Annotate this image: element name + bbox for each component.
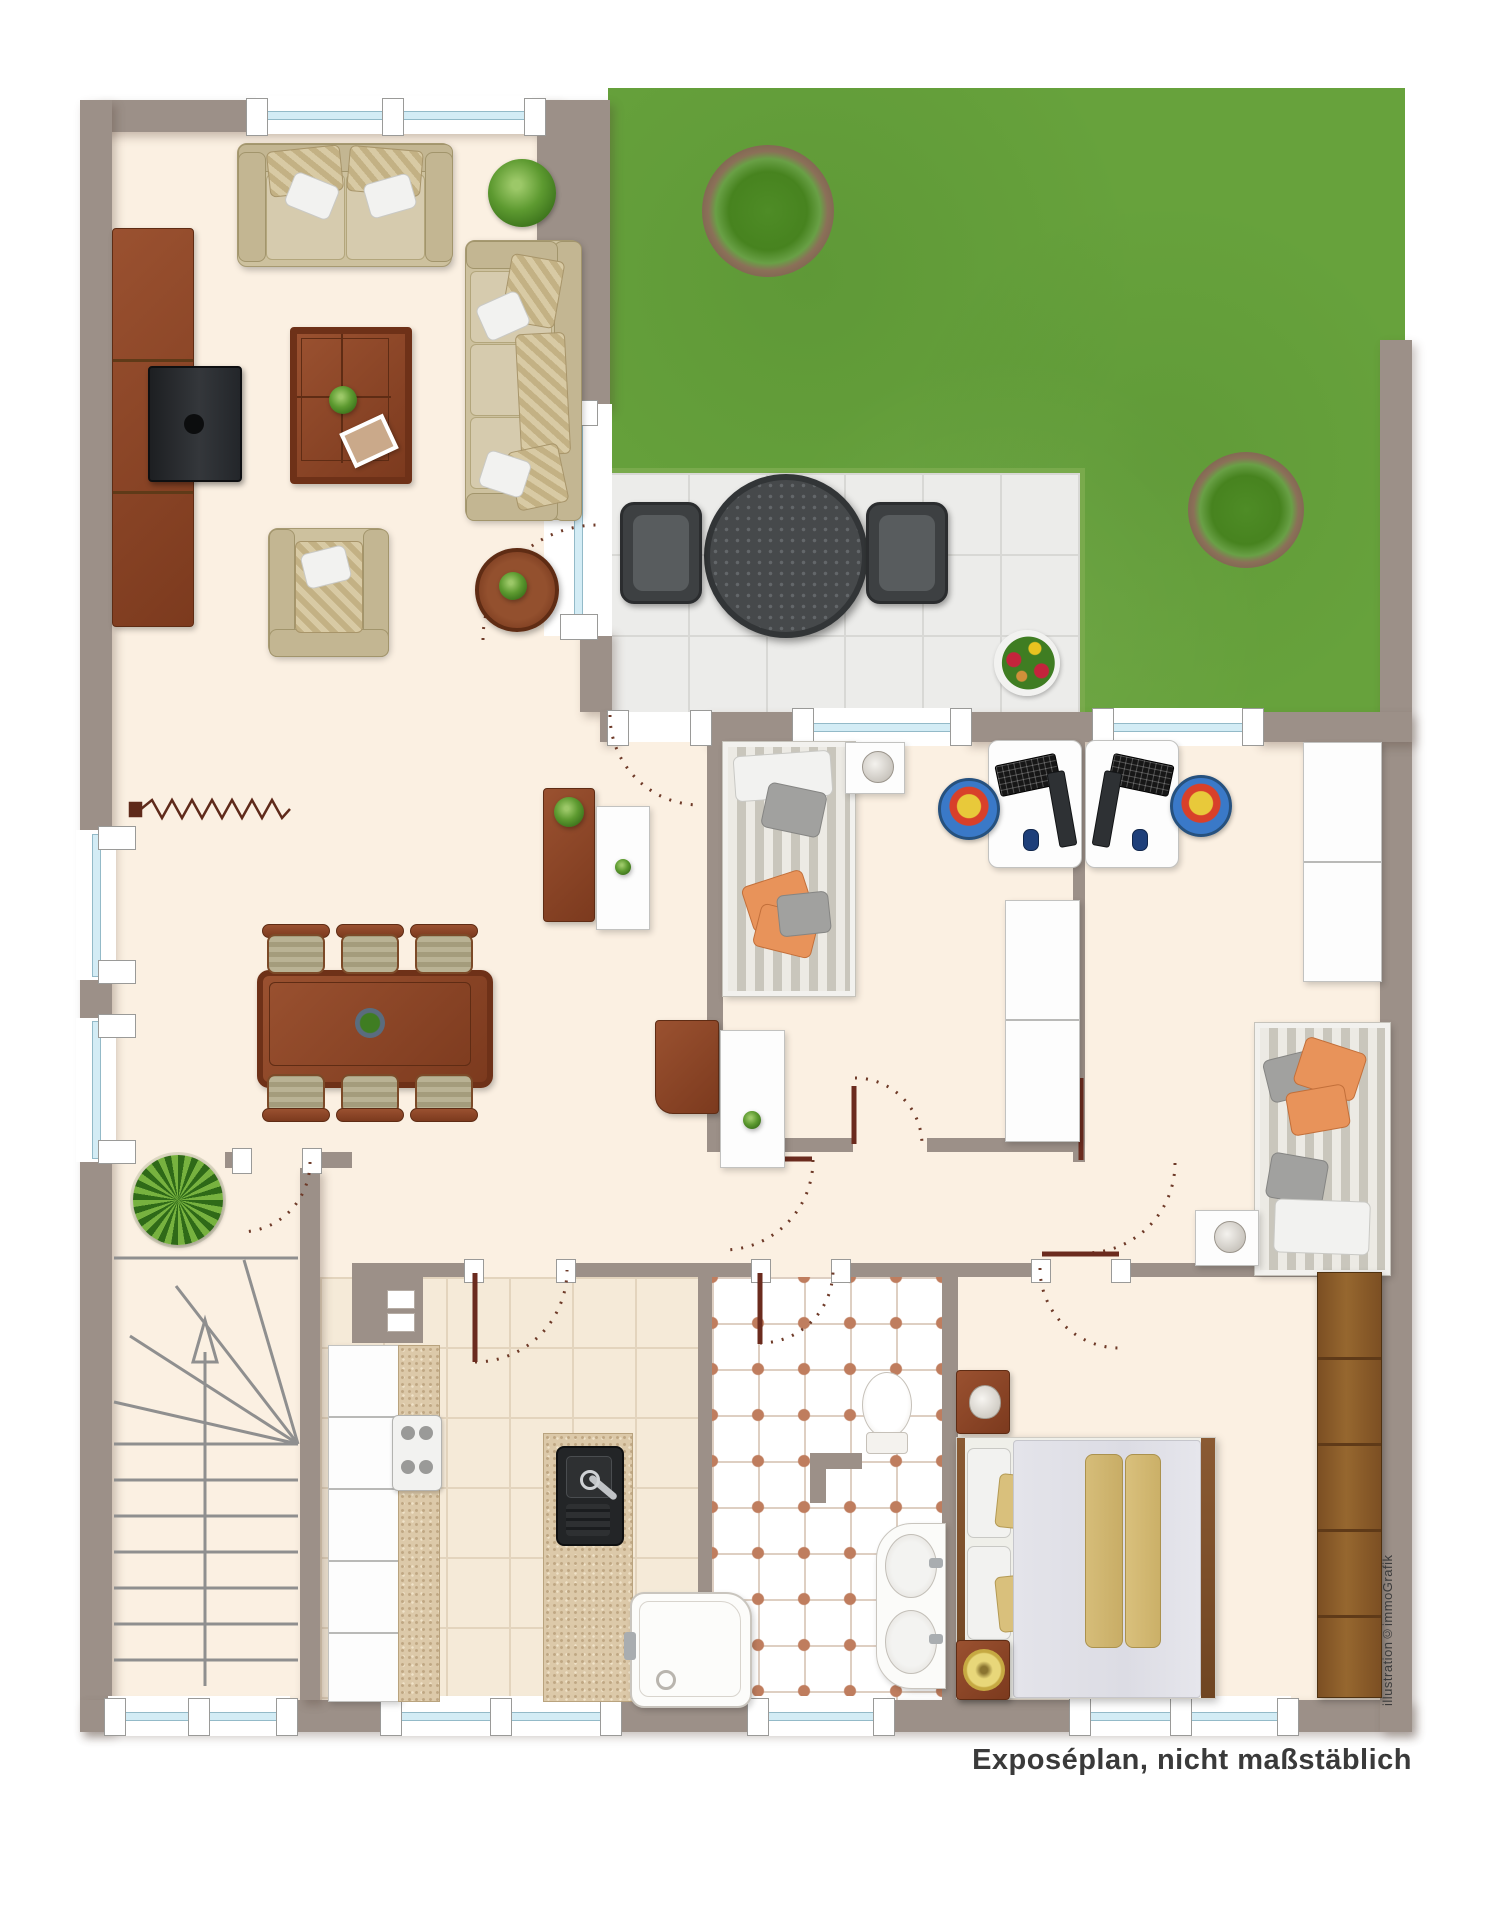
dining-table (257, 970, 493, 1088)
bedroom-wardrobe (1317, 1272, 1382, 1698)
three-seat-sofa (465, 240, 581, 520)
bedroom-nightstand-top (956, 1370, 1010, 1434)
lamp-icon (1214, 1221, 1246, 1253)
door-arc-hall-terrace (610, 715, 700, 805)
yucca-plant-icon (133, 1155, 223, 1245)
dining-chair (336, 924, 402, 972)
tv-icon (148, 366, 242, 482)
kitchen-counter (398, 1345, 440, 1702)
dining-chair (410, 1072, 476, 1120)
door-arc-child1 (855, 1078, 922, 1145)
faucet-icon (929, 1634, 943, 1644)
drain-icon (656, 1670, 676, 1690)
child2-chair (1170, 775, 1232, 837)
door-arc-bedroom (1040, 1268, 1120, 1348)
child1-wardrobe (1005, 900, 1080, 1142)
hall-cabinet-2 (720, 1030, 785, 1168)
round-side-table (475, 548, 559, 632)
mouse-icon (1132, 829, 1148, 851)
table-plant-icon (355, 1008, 385, 1038)
child1-bed (723, 742, 855, 996)
dining-chair (336, 1072, 402, 1120)
child1-chair (938, 778, 1000, 840)
child2-wardrobe (1303, 742, 1382, 982)
hall-cabinet (596, 806, 650, 930)
door-arc-bath (760, 1270, 833, 1343)
shower-tub-icon (630, 1592, 752, 1708)
plan-caption: Exposéplan, nicht maßstäblich (800, 1744, 1412, 1788)
hall-sideboard (543, 788, 595, 922)
dining-chair (262, 1072, 328, 1120)
bedroom-nightstand-bottom (956, 1640, 1010, 1700)
child1-nightstand (845, 742, 905, 794)
dining-chair (410, 924, 476, 972)
armchair (268, 528, 388, 656)
faucet-icon (929, 1558, 943, 1568)
yellow-blanket (1125, 1454, 1161, 1648)
staircase-icon (114, 1258, 298, 1686)
faucet-icon (624, 1632, 636, 1660)
hall-sideboard-2 (655, 1020, 719, 1114)
kitchen-cabinet-run (328, 1345, 400, 1702)
child1-desk (988, 740, 1082, 868)
radiator-zigzag-icon (130, 800, 290, 818)
child2-desk (1085, 740, 1179, 868)
child2-bed (1255, 1023, 1390, 1275)
dining-chair (262, 924, 328, 972)
child2-nightstand (1195, 1210, 1259, 1266)
kitchen-sink-icon (556, 1446, 624, 1546)
yellow-blanket (1085, 1454, 1123, 1648)
coffee-table (290, 327, 412, 484)
door-arc-kitchen (475, 1270, 567, 1362)
toilet-icon (860, 1372, 912, 1458)
lamp-icon (969, 1385, 1001, 1419)
double-washbasin (876, 1523, 946, 1689)
lamp-icon (862, 751, 894, 783)
door-arc-child2 (1085, 1163, 1175, 1253)
floor-plan-canvas: Exposéplan, nicht maßstäblich illustrati… (0, 0, 1509, 1919)
mouse-icon (1023, 829, 1039, 851)
two-seat-sofa (237, 143, 452, 267)
illustrator-watermark: illustration©immoGrafik (1380, 1538, 1404, 1706)
stove-icon (392, 1415, 442, 1491)
door-arc-hall-corridor (723, 1160, 813, 1250)
door-arc-entry (240, 1162, 310, 1232)
gold-dish-icon (963, 1649, 1005, 1691)
houseplant-icon (488, 159, 556, 227)
